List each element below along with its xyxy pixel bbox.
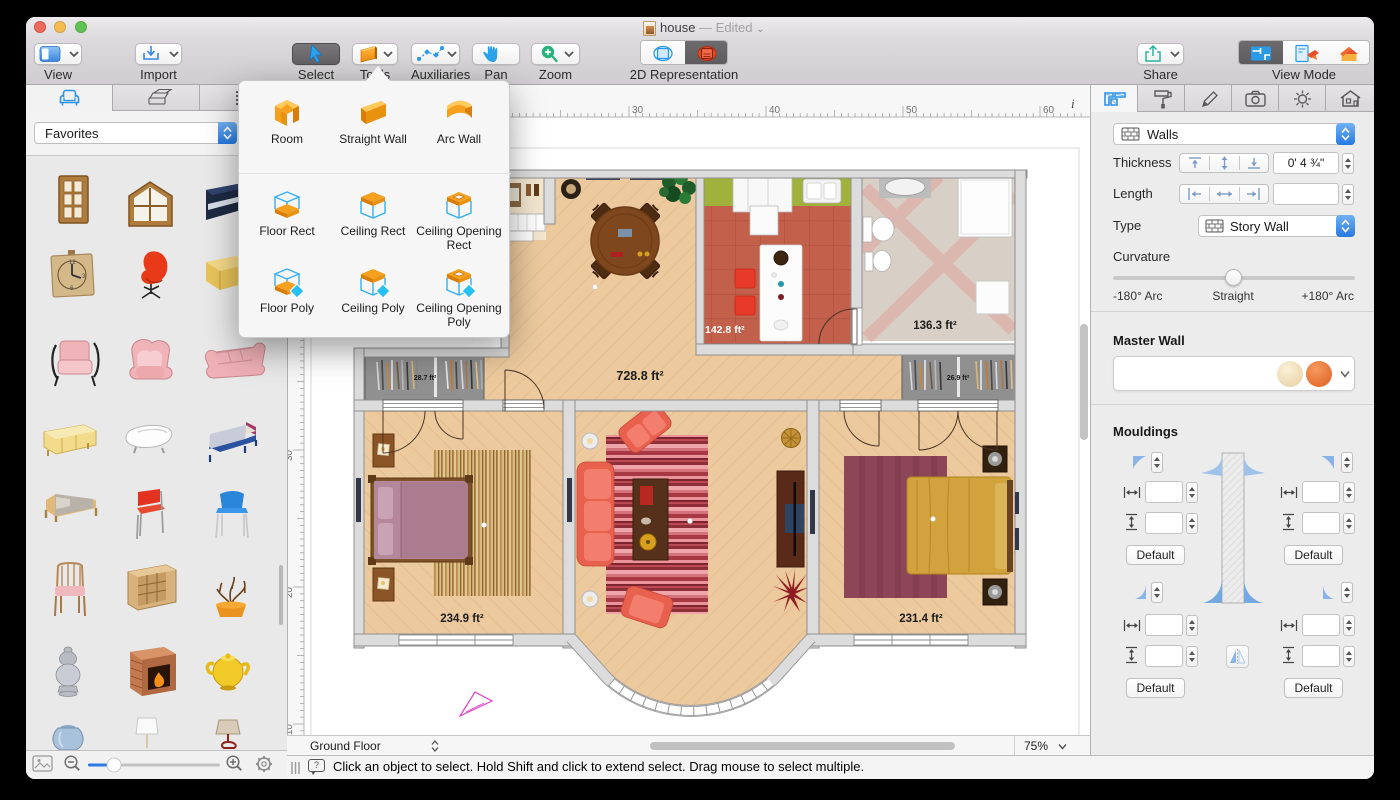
svg-text:728.8 ft²: 728.8 ft² <box>616 369 663 383</box>
svg-text:231.4 ft²: 231.4 ft² <box>899 613 943 625</box>
svg-text:30: 30 <box>288 450 295 462</box>
svg-text:28.7 ft²: 28.7 ft² <box>414 375 437 382</box>
svg-text:50: 50 <box>906 105 918 116</box>
svg-text:40: 40 <box>769 105 781 116</box>
svg-text:136.3 ft²: 136.3 ft² <box>913 320 957 332</box>
svg-text:26.9 ft²: 26.9 ft² <box>947 375 970 382</box>
svg-text:i: i <box>1071 96 1075 111</box>
svg-text:12: 12 <box>69 260 76 266</box>
svg-text:30: 30 <box>632 105 644 116</box>
svg-text:142.8 ft²: 142.8 ft² <box>705 324 745 336</box>
svg-text:60: 60 <box>1043 105 1055 116</box>
svg-text:234.9 ft²: 234.9 ft² <box>440 613 484 625</box>
svg-text:20: 20 <box>288 587 295 599</box>
svg-text:10: 10 <box>288 724 295 735</box>
